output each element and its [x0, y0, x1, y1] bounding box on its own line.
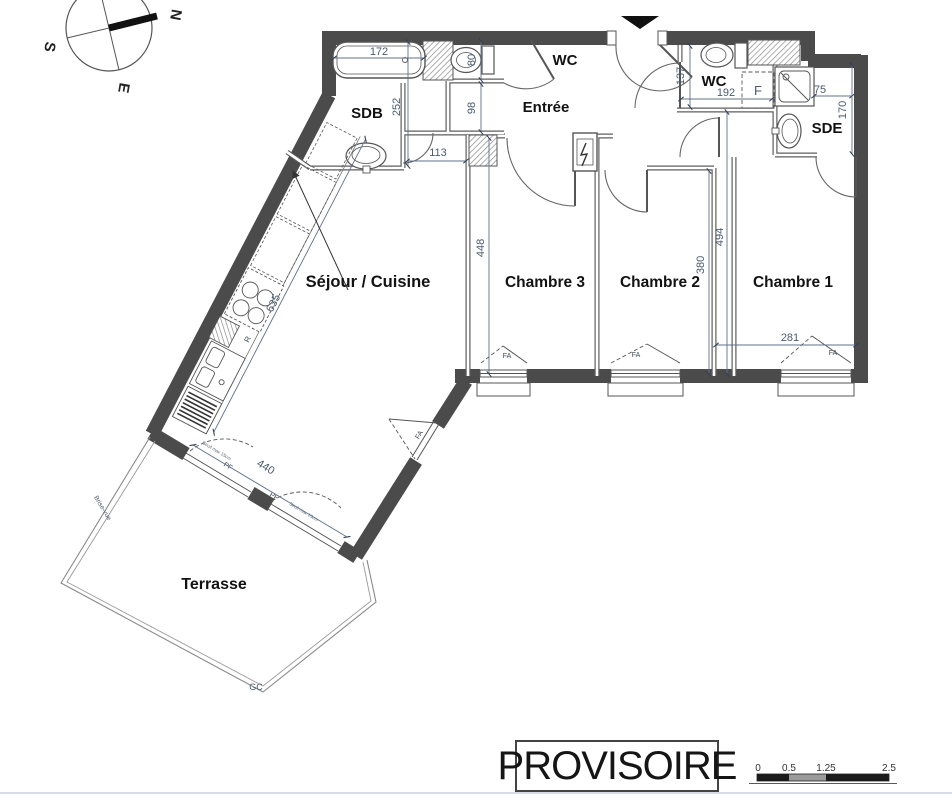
room-sde: SDE: [812, 120, 843, 137]
dim-chambre1-depth: 494: [714, 228, 726, 246]
room-entree: Entrée: [523, 99, 570, 116]
stamp-text: PROVISOIRE: [498, 744, 737, 788]
dim-passage: 113: [429, 147, 447, 159]
provisoire-stamp: PROVISOIRE: [498, 741, 737, 791]
room-sdb: SDB: [351, 105, 383, 122]
duct-shaft: [748, 40, 800, 65]
dim-bay: 440: [255, 458, 277, 478]
fa-label: FA: [632, 352, 641, 359]
scale-bar: 0 0.5 1.25 2.5: [749, 763, 897, 784]
wc1-door-leaf: [531, 40, 554, 79]
floor-plan-page: N S E: [0, 0, 952, 800]
electrical-panel: [573, 133, 597, 171]
fridge-label: R: [242, 335, 253, 344]
entrance-marker-icon: [621, 16, 659, 29]
dim-passage2: 98: [466, 102, 478, 114]
compass-north: N: [166, 8, 185, 22]
compass-south: S: [40, 40, 58, 53]
window-sill: [608, 383, 683, 396]
scale-0: 0: [755, 763, 761, 774]
wc2-toilet: [701, 43, 747, 68]
room-terrasse: Terrasse: [181, 576, 247, 593]
gc-label: GC: [249, 682, 263, 692]
windows: FA FA FA FA PF PF Seuil max 15cm Seuil m…: [183, 336, 854, 551]
fa-label: FA: [829, 350, 838, 357]
compass-east: E: [114, 81, 132, 94]
room-chambre2: Chambre 2: [620, 274, 700, 291]
closet-f-label: F: [754, 83, 762, 98]
compass-needle-icon: [109, 16, 157, 28]
threshold-note: Seuil max 15cm: [201, 440, 232, 461]
scale-05: 0.5: [782, 763, 796, 774]
room-labels: SDB WC Entrée WC SDE Séjour / Cuisine Ch…: [181, 52, 842, 593]
dim-wc2-depth: 137: [675, 67, 687, 85]
dim-chambre2: 380: [695, 256, 707, 274]
scale-25: 2.5: [882, 763, 896, 774]
window-sill: [778, 383, 854, 396]
floor-plan-drawing: N S E: [0, 0, 952, 800]
dim-chambre3: 448: [475, 239, 487, 257]
dim-sdb: 252: [391, 98, 403, 116]
scale-125: 1.25: [816, 763, 836, 774]
duct-shaft: [469, 135, 497, 166]
window-sill: [477, 383, 530, 396]
dim-wc1: 80: [466, 54, 478, 66]
dim-sde: 170: [837, 101, 849, 119]
interior-walls: [287, 45, 817, 376]
duct-shaft: [423, 41, 453, 80]
compass-rose: N S E: [40, 0, 185, 94]
fa-label: FA: [503, 353, 512, 360]
screen-note: Brise-vue: [92, 495, 112, 522]
room-wc1: WC: [553, 52, 578, 69]
room-chambre1: Chambre 1: [753, 274, 833, 291]
room-sejour: Séjour / Cuisine: [306, 273, 431, 291]
room-chambre3: Chambre 3: [505, 274, 585, 291]
dim-chambre1-width: 281: [781, 332, 799, 344]
dim-shower: 75: [814, 84, 826, 96]
shower: [775, 67, 814, 106]
room-wc2: WC: [702, 73, 727, 90]
terrace-outline: Brise-vue GC: [61, 437, 376, 692]
dim-bathtub: 172: [370, 46, 388, 58]
